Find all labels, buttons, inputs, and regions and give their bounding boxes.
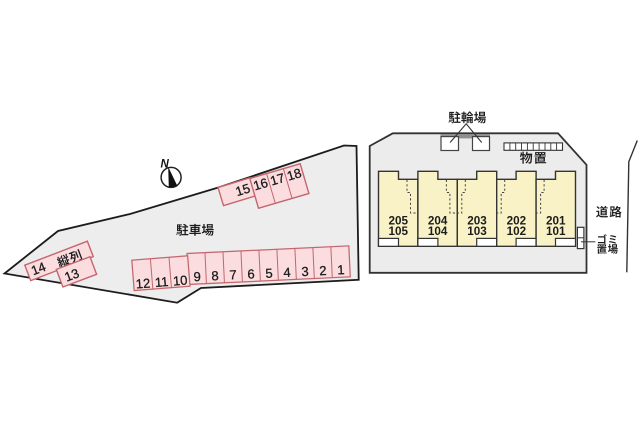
- svg-text:5: 5: [265, 265, 273, 280]
- svg-text:N: N: [161, 159, 170, 171]
- svg-text:10: 10: [172, 273, 188, 289]
- svg-text:102: 102: [507, 225, 527, 238]
- svg-text:12: 12: [135, 275, 151, 291]
- svg-text:3: 3: [301, 264, 309, 279]
- svg-text:8: 8: [211, 268, 219, 283]
- svg-text:11: 11: [154, 274, 169, 290]
- svg-text:7: 7: [229, 267, 237, 282]
- svg-text:101: 101: [546, 225, 566, 238]
- svg-text:6: 6: [247, 266, 255, 281]
- svg-text:104: 104: [428, 225, 448, 238]
- svg-text:4: 4: [283, 265, 291, 280]
- svg-text:9: 9: [193, 269, 201, 284]
- svg-text:105: 105: [388, 225, 408, 238]
- svg-text:103: 103: [467, 225, 487, 238]
- svg-text:1: 1: [337, 262, 345, 277]
- svg-text:2: 2: [319, 263, 327, 278]
